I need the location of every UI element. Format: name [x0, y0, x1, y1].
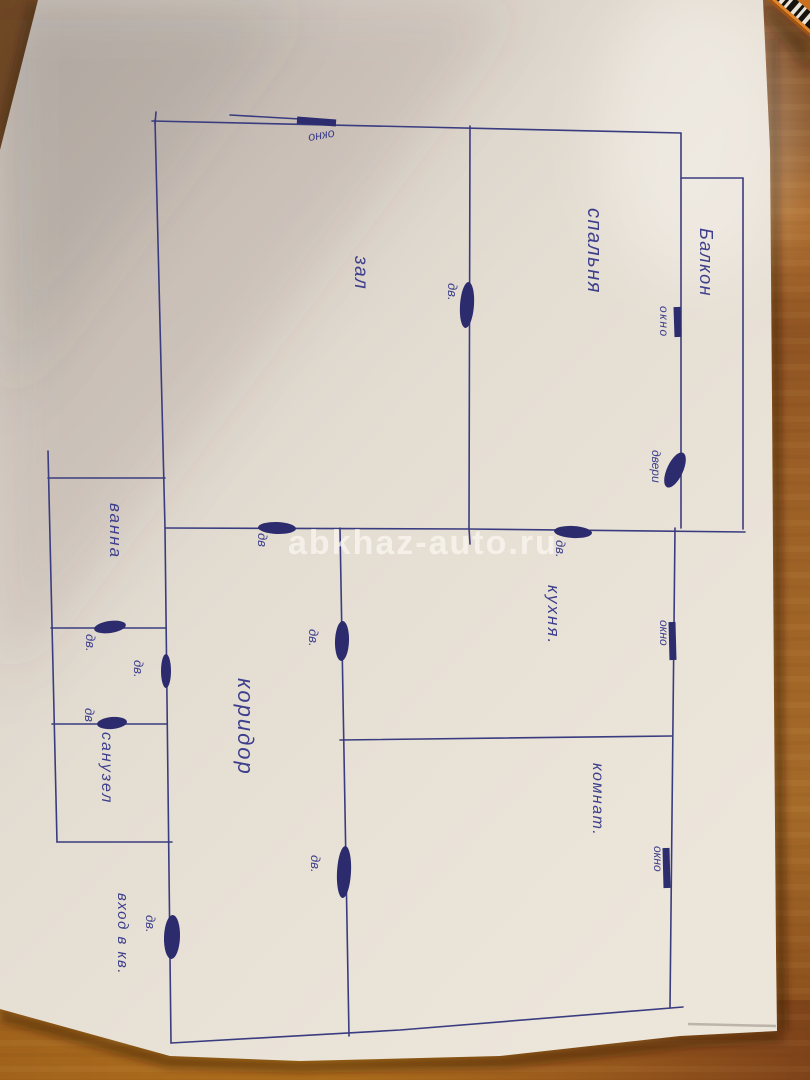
svg-text:abkhaz-auto.ru: abkhaz-auto.ru — [288, 524, 558, 562]
svg-text:двери: двери — [649, 450, 663, 483]
svg-text:Балкон: Балкон — [696, 228, 716, 297]
svg-text:ванна: ванна — [106, 503, 125, 559]
svg-text:дв: дв — [255, 533, 270, 547]
svg-text:окно: окно — [657, 306, 671, 338]
svg-text:окно: окно — [657, 620, 671, 646]
svg-text:вход в кв.: вход в кв. — [114, 893, 131, 975]
svg-text:дв.: дв. — [143, 915, 158, 933]
svg-text:дв.: дв. — [306, 629, 321, 647]
svg-text:дв.: дв. — [308, 855, 323, 873]
svg-text:окно: окно — [651, 846, 665, 872]
svg-text:дв.: дв. — [131, 660, 146, 678]
svg-text:спальня: спальня — [583, 208, 605, 294]
svg-text:дв.: дв. — [445, 283, 460, 301]
svg-text:дв.: дв. — [83, 634, 98, 652]
svg-text:коридор: коридор — [233, 678, 258, 776]
svg-text:зал: зал — [350, 255, 371, 290]
svg-text:санузел: санузел — [98, 732, 115, 804]
svg-text:кухня.: кухня. — [544, 585, 563, 645]
svg-text:дв: дв — [82, 708, 97, 722]
svg-text:комнат.: комнат. — [589, 763, 606, 836]
